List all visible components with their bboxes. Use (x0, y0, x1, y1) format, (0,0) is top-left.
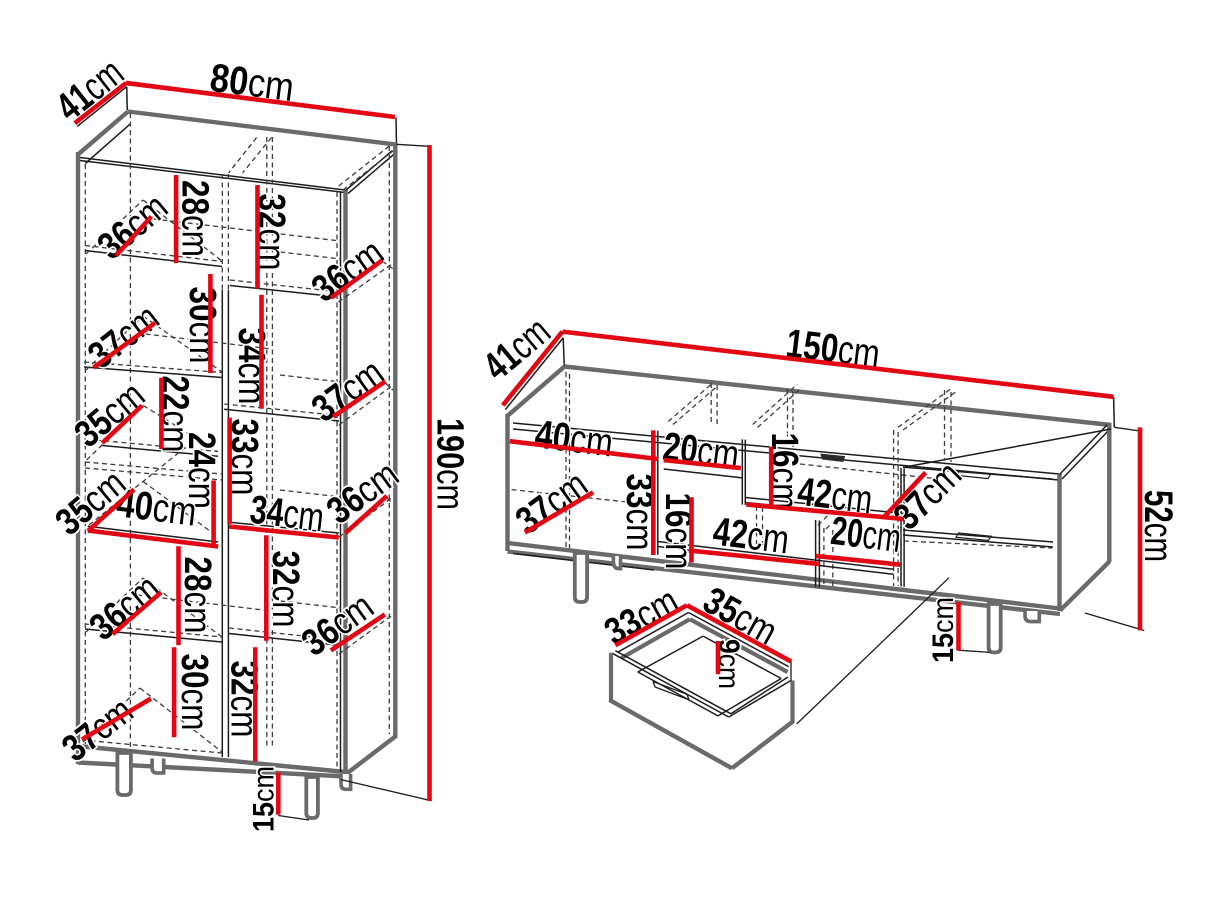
svg-text:30cm: 30cm (173, 654, 215, 731)
svg-text:30cm: 30cm (181, 287, 223, 364)
svg-text:28cm: 28cm (174, 180, 216, 257)
svg-text:28cm: 28cm (176, 557, 218, 634)
svg-text:15cm: 15cm (247, 766, 280, 832)
svg-text:190cm: 190cm (429, 418, 471, 510)
svg-text:52cm: 52cm (1136, 490, 1180, 562)
svg-text:32cm: 32cm (223, 661, 265, 738)
svg-text:32cm: 32cm (264, 551, 306, 628)
svg-text:20cm: 20cm (661, 425, 742, 478)
svg-text:34cm: 34cm (230, 328, 272, 405)
svg-text:15cm: 15cm (927, 597, 960, 663)
